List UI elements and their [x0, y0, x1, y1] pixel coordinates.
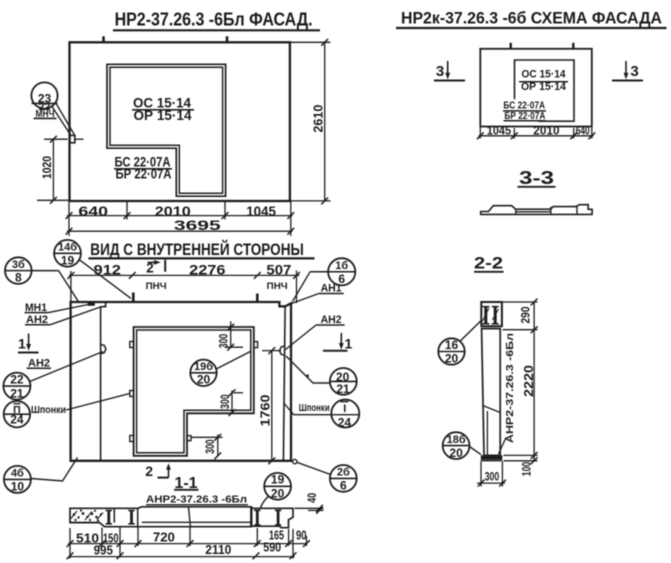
svg-text:1045: 1045	[487, 126, 512, 138]
svg-text:ПНЧ: ПНЧ	[146, 281, 167, 292]
svg-text:3б: 3б	[12, 259, 25, 271]
svg-text:20: 20	[197, 373, 211, 387]
svg-text:19: 19	[271, 473, 285, 487]
svg-text:300: 300	[219, 334, 231, 349]
svg-text:2б: 2б	[337, 467, 350, 479]
svg-text:16: 16	[445, 338, 459, 352]
svg-text:20: 20	[449, 446, 463, 460]
svg-text:640: 640	[78, 203, 108, 219]
svg-text:912: 912	[94, 262, 122, 278]
svg-text:НР2-37.26.3 -6Бл ФАСАД.: НР2-37.26.3 -6Бл ФАСАД.	[115, 10, 313, 30]
svg-text:I: I	[343, 403, 346, 415]
svg-text:АНР2-37.26.3 -6Бл: АНР2-37.26.3 -6Бл	[146, 494, 247, 506]
svg-text:300: 300	[485, 469, 500, 483]
svg-text:ВИД С ВНУТРЕННЕЙ СТОРОНЫ: ВИД С ВНУТРЕННЕЙ СТОРОНЫ	[90, 240, 303, 259]
svg-text:ОР 15·14: ОР 15·14	[521, 81, 567, 93]
svg-text:ОС 15·14: ОС 15·14	[522, 68, 567, 80]
svg-text:2220: 2220	[522, 365, 536, 397]
svg-text:ОР 15·14: ОР 15·14	[134, 108, 192, 123]
svg-text:507: 507	[266, 262, 291, 278]
svg-text:10: 10	[11, 480, 25, 494]
svg-text:640: 640	[576, 126, 590, 138]
svg-text:6: 6	[340, 479, 347, 493]
svg-text:БР 22·07А: БР 22·07А	[116, 167, 172, 182]
svg-text:90: 90	[296, 529, 307, 543]
svg-text:995: 995	[94, 543, 113, 557]
svg-text:2010: 2010	[533, 126, 559, 138]
svg-text:2: 2	[145, 463, 153, 479]
svg-text:24: 24	[338, 416, 352, 430]
svg-text:ПНЧ: ПНЧ	[267, 281, 288, 292]
svg-text:24: 24	[10, 412, 24, 426]
svg-text:720: 720	[153, 531, 175, 545]
svg-text:3: 3	[436, 63, 444, 80]
svg-text:1б: 1б	[335, 260, 348, 272]
svg-text:3: 3	[630, 63, 638, 80]
svg-text:2-2: 2-2	[474, 253, 503, 272]
svg-text:18б: 18б	[447, 434, 466, 446]
svg-text:19б: 19б	[194, 361, 213, 373]
svg-text:АН2: АН2	[321, 314, 342, 326]
svg-text:НР2к-37.26.3 -6б СХЕМА ФАСАДА: НР2к-37.26.3 -6б СХЕМА ФАСАДА	[401, 9, 662, 28]
svg-text:300: 300	[220, 394, 232, 409]
svg-text:Шпонки: Шпонки	[299, 402, 330, 414]
svg-text:21: 21	[336, 382, 350, 396]
svg-text:2110: 2110	[205, 543, 231, 557]
svg-text:3-3: 3-3	[519, 168, 554, 188]
svg-text:4б: 4б	[11, 468, 24, 480]
svg-text:19: 19	[61, 253, 75, 267]
svg-text:20: 20	[271, 487, 285, 501]
svg-text:1: 1	[18, 336, 26, 352]
svg-text:300: 300	[205, 439, 217, 454]
svg-text:100: 100	[521, 462, 533, 477]
svg-text:1020: 1020	[40, 156, 54, 179]
svg-text:40: 40	[307, 493, 319, 503]
svg-text:1045: 1045	[246, 203, 276, 219]
svg-text:290: 290	[521, 307, 533, 324]
svg-text:14б: 14б	[58, 242, 77, 254]
svg-text:8: 8	[15, 271, 22, 285]
svg-text:590: 590	[263, 541, 281, 555]
svg-text:20: 20	[445, 352, 459, 366]
svg-text:2276: 2276	[189, 262, 226, 278]
svg-text:АНР2-37.26.3 -6Бл: АНР2-37.26.3 -6Бл	[504, 333, 516, 443]
svg-text:Шпонки: Шпонки	[31, 405, 66, 416]
svg-text:2610: 2610	[310, 105, 325, 133]
svg-text:21: 21	[10, 386, 24, 400]
svg-text:22: 22	[10, 372, 24, 386]
svg-text:3695: 3695	[174, 217, 221, 233]
svg-text:1: 1	[345, 336, 353, 352]
svg-text:1760: 1760	[258, 395, 273, 427]
